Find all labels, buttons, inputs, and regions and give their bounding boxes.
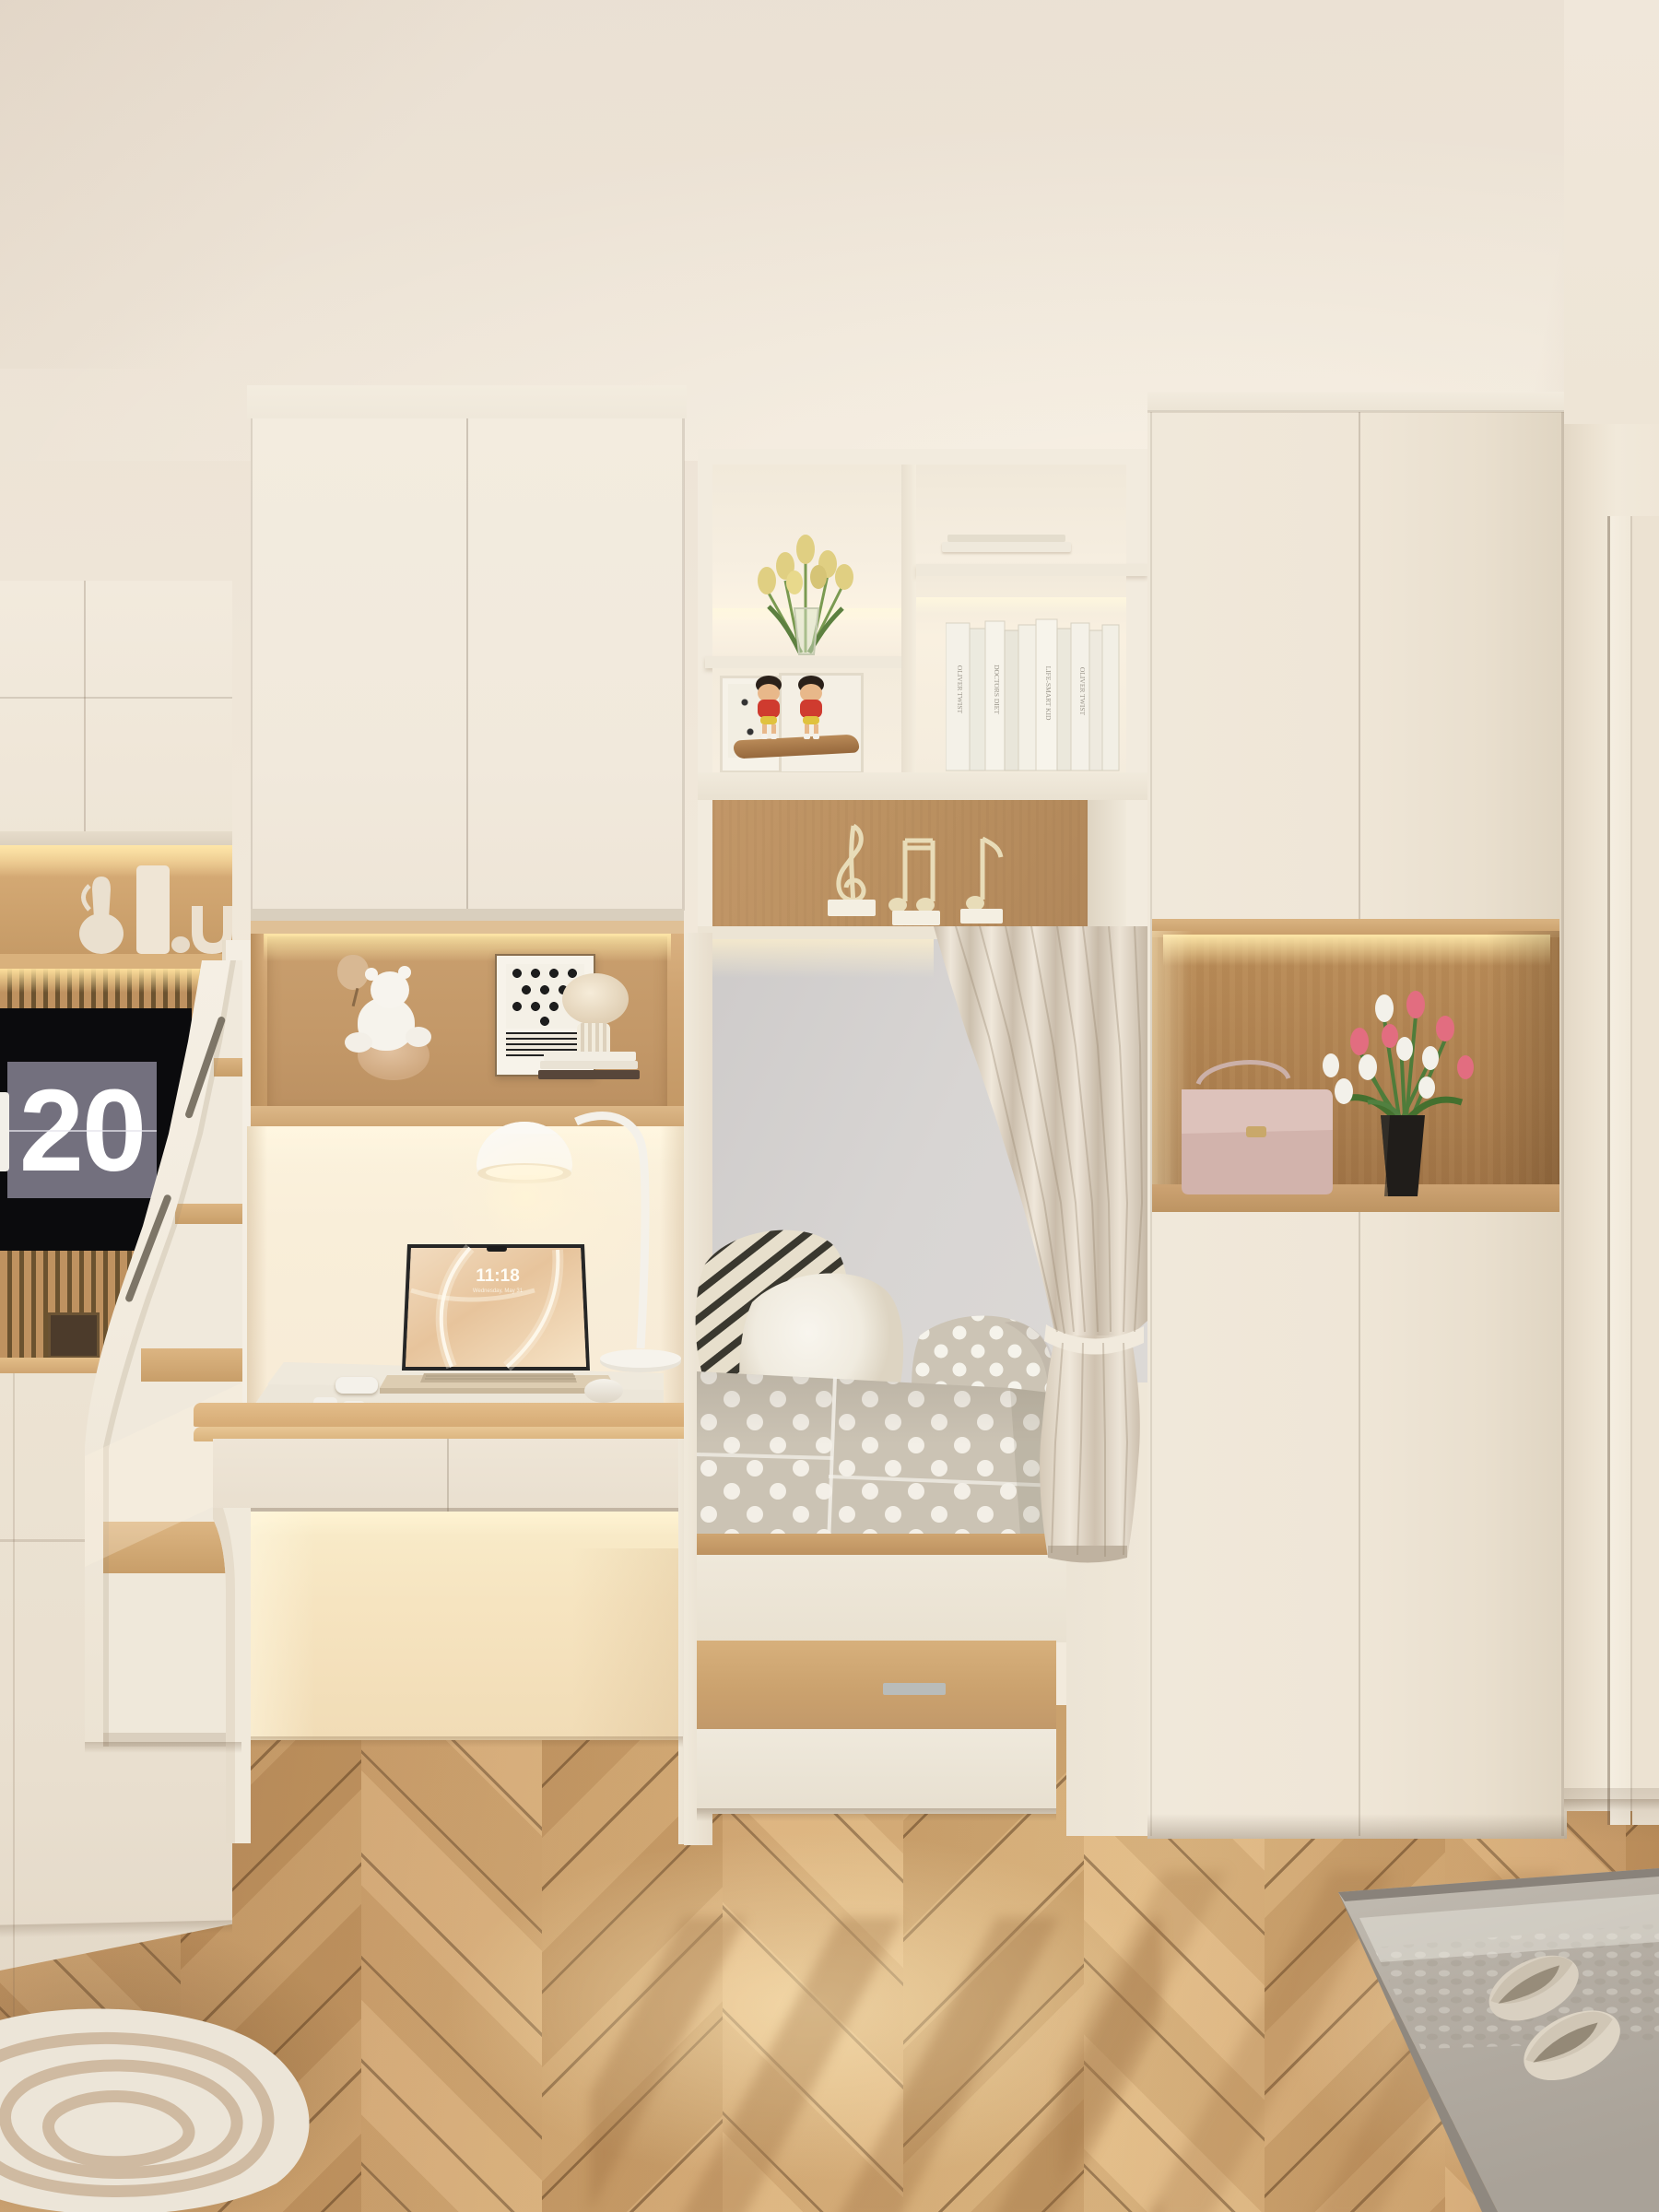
svg-text:OLIVER TWIST: OLIVER TWIST	[956, 665, 964, 714]
svg-text:LIFE-SMART KID: LIFE-SMART KID	[1044, 666, 1053, 721]
svg-text:11:18: 11:18	[476, 1266, 520, 1286]
svg-text:Wednesday, May 31: Wednesday, May 31	[473, 1288, 524, 1294]
svg-text:DOCTORS DIET: DOCTORS DIET	[993, 665, 1001, 714]
svg-text:OLIVER TWIST: OLIVER TWIST	[1078, 667, 1087, 716]
